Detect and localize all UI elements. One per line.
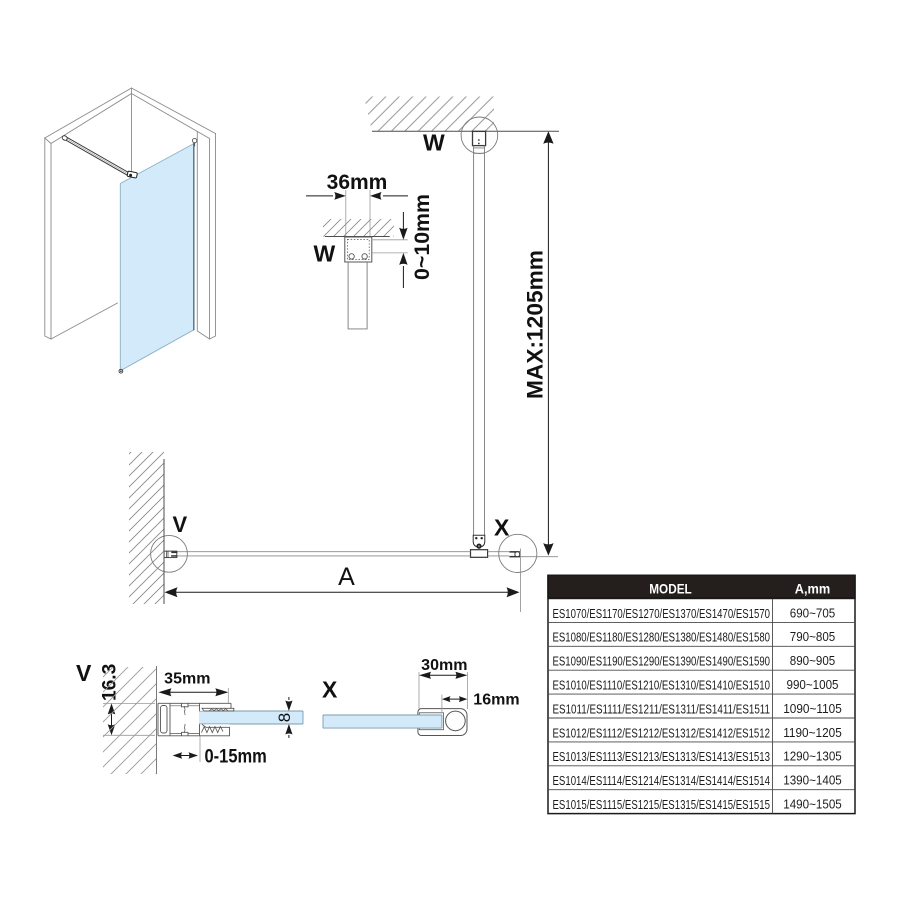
svg-text:1490~1505: 1490~1505: [783, 798, 842, 812]
svg-text:MAX:1205mm: MAX:1205mm: [523, 250, 548, 399]
svg-text:890~905: 890~905: [790, 654, 836, 668]
svg-text:990~1005: 990~1005: [787, 678, 839, 692]
svg-text:790~805: 790~805: [790, 630, 836, 644]
svg-text:W: W: [423, 130, 445, 156]
svg-text:A: A: [338, 563, 355, 591]
svg-text:ES1070/ES1170/ES1270/ES1370/ES: ES1070/ES1170/ES1270/ES1370/ES1470/ES157…: [553, 607, 771, 621]
svg-text:ES1080/ES1180/ES1280/ES1380/ES: ES1080/ES1180/ES1280/ES1380/ES1480/ES158…: [553, 631, 771, 645]
svg-text:35mm: 35mm: [164, 670, 210, 687]
svg-text:1290~1305: 1290~1305: [783, 750, 842, 764]
svg-text:ES1090/ES1190/ES1290/ES1390/ES: ES1090/ES1190/ES1290/ES1390/ES1490/ES159…: [553, 655, 771, 669]
svg-text:16mm: 16mm: [473, 692, 519, 709]
svg-text:36mm: 36mm: [327, 171, 388, 194]
svg-text:X: X: [494, 515, 510, 541]
svg-text:W: W: [314, 240, 336, 266]
svg-text:ES1011/ES1111/ES1211/ES1311/ES: ES1011/ES1111/ES1211/ES1311/ES1411/ES151…: [553, 702, 771, 716]
svg-text:690~705: 690~705: [790, 606, 836, 620]
svg-text:1090~1105: 1090~1105: [783, 702, 842, 716]
svg-text:0-15mm: 0-15mm: [205, 747, 267, 768]
svg-text:1190~1205: 1190~1205: [783, 726, 842, 740]
svg-text:MODEL: MODEL: [649, 582, 692, 597]
svg-text:ES1012/ES1112/ES1212/ES1312/ES: ES1012/ES1112/ES1212/ES1312/ES1412/ES151…: [553, 726, 771, 740]
svg-text:V: V: [173, 512, 188, 537]
svg-text:1390~1405: 1390~1405: [783, 774, 842, 788]
svg-text:0~10mm: 0~10mm: [411, 194, 434, 280]
svg-text:ES1015/ES1115/ES1215/ES1315/ES: ES1015/ES1115/ES1215/ES1315/ES1415/ES151…: [553, 798, 771, 812]
svg-text:A,mm: A,mm: [795, 582, 831, 597]
svg-text:ES1010/ES1110/ES1210/ES1310/ES: ES1010/ES1110/ES1210/ES1310/ES1410/ES151…: [553, 679, 771, 693]
svg-text:V: V: [76, 660, 92, 686]
svg-text:8: 8: [275, 713, 294, 722]
svg-text:X: X: [322, 677, 338, 703]
svg-text:ES1013/ES1113/ES1213/ES1313/ES: ES1013/ES1113/ES1213/ES1313/ES1413/ES151…: [553, 750, 771, 764]
svg-text:30mm: 30mm: [421, 657, 467, 674]
svg-text:ES1014/ES1114/ES1214/ES1314/ES: ES1014/ES1114/ES1214/ES1314/ES1414/ES151…: [553, 774, 771, 788]
